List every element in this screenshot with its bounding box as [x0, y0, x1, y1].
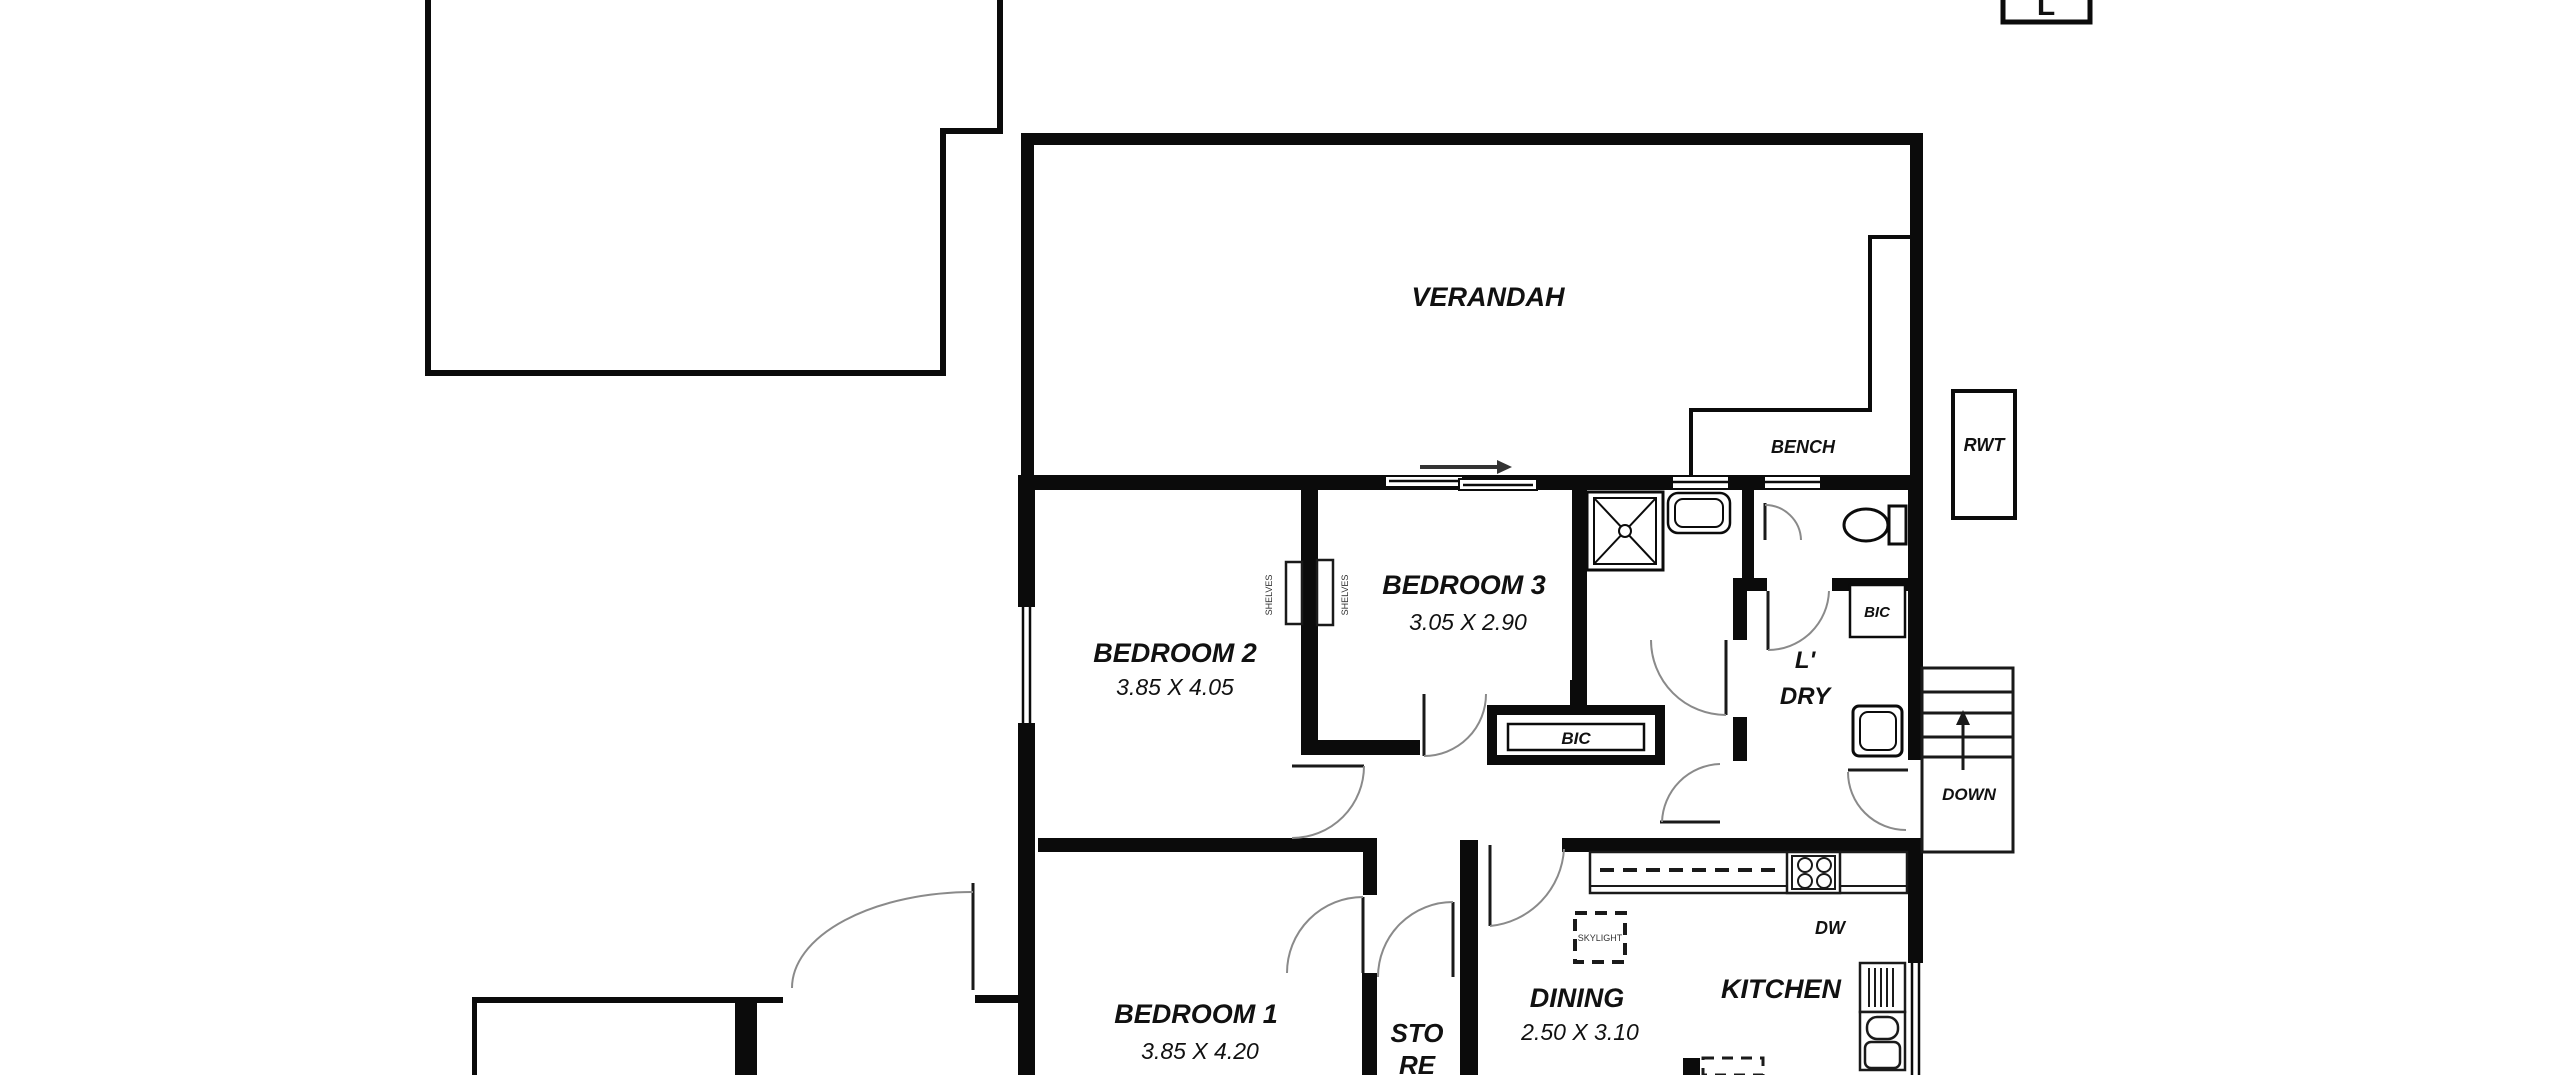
- bedroom2-dims: 3.85 X 4.05: [1116, 674, 1234, 700]
- floor-plan-canvas: VERANDAH BENCH RWT L BEDROOM 2 3.85 X 4.…: [0, 0, 2560, 1075]
- down-label: DOWN: [1942, 785, 1997, 804]
- laundry-label-line2: DRY: [1780, 683, 1832, 710]
- robe-left-label: SHELVES: [1264, 575, 1274, 616]
- window-top-2: [1765, 477, 1820, 488]
- bedroom3-label: BEDROOM 3: [1382, 570, 1546, 600]
- bedroom2-label: BEDROOM 2: [1093, 638, 1257, 668]
- window-kitchen: [1908, 963, 1923, 1075]
- stairs: [1922, 668, 2013, 852]
- bedroom1-dims: 3.85 X 4.20: [1141, 1038, 1259, 1064]
- kitchen-bench: [1590, 852, 1907, 893]
- cooktop: [1787, 852, 1840, 893]
- window-top-1: [1673, 477, 1728, 488]
- dining-dims: 2.50 X 3.10: [1520, 1019, 1639, 1045]
- kitchen-label: KITCHEN: [1721, 974, 1841, 1004]
- fridge-pantry: [1860, 963, 1905, 1012]
- corner-marker-label: L: [2037, 0, 2055, 22]
- kitchen-sink: [1860, 1012, 1905, 1070]
- vanity-basin: [1668, 493, 1730, 533]
- robe-right-label: SHELVES: [1340, 575, 1350, 616]
- store-label-line1: STO: [1391, 1018, 1444, 1048]
- shower: [1587, 492, 1663, 570]
- bedroom3-dims: 3.05 X 2.90: [1409, 609, 1527, 635]
- bic-hall-label: BIC: [1561, 729, 1591, 748]
- laundry-label-line1: L': [1795, 647, 1817, 674]
- skylight-label: SKYLIGHT: [1578, 933, 1623, 943]
- floor-plan-drawing: VERANDAH BENCH RWT L BEDROOM 2 3.85 X 4.…: [0, 0, 2560, 1075]
- toilet: [1844, 506, 1906, 544]
- dining-label: DINING: [1530, 983, 1625, 1013]
- laundry-trough: [1853, 706, 1902, 756]
- slide-arrow-icon: [1497, 460, 1512, 474]
- window-bedroom2: [1018, 607, 1035, 723]
- store-label-line2: RE: [1399, 1050, 1436, 1075]
- bench-label: BENCH: [1771, 437, 1836, 457]
- dining-furniture-partial: [1683, 1058, 1763, 1075]
- shed-outline: [425, 0, 1003, 376]
- bedroom1-label: BEDROOM 1: [1114, 999, 1278, 1029]
- bic-laundry-label: BIC: [1864, 604, 1891, 621]
- porch-outline: [472, 995, 1018, 1075]
- verandah-label: VERANDAH: [1411, 282, 1565, 312]
- rwt-label: RWT: [1964, 435, 2007, 455]
- dw-label: DW: [1815, 918, 1847, 938]
